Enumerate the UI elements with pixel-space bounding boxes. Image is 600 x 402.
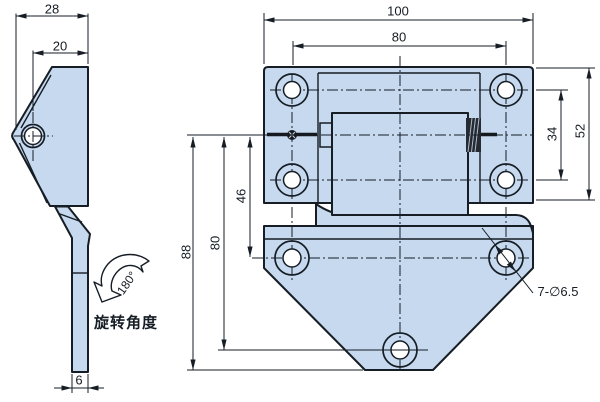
side-view [12, 13, 149, 393]
hole-callout-label: 7-∅6.5 [538, 284, 579, 300]
dim-label-6: 6 [75, 373, 82, 388]
side-arm [55, 207, 90, 373]
dim-label-100: 100 [387, 4, 409, 19]
dim-label-88: 88 [179, 245, 194, 259]
hinge-technical-drawing: 28 20 6 180° 旋转角度 100 80 52 34 46 80 88 … [0, 0, 600, 402]
rotation-caption: 旋转角度 [94, 312, 158, 333]
dim-label-80-left: 80 [208, 236, 223, 250]
dim-label-52: 52 [573, 124, 588, 138]
drawing-canvas [0, 0, 600, 402]
dim-label-28: 28 [45, 2, 59, 17]
dim-label-34: 34 [545, 127, 560, 141]
dim-label-46: 46 [234, 189, 249, 203]
dim-label-80-top: 80 [392, 30, 406, 45]
dim-label-20: 20 [53, 39, 67, 54]
